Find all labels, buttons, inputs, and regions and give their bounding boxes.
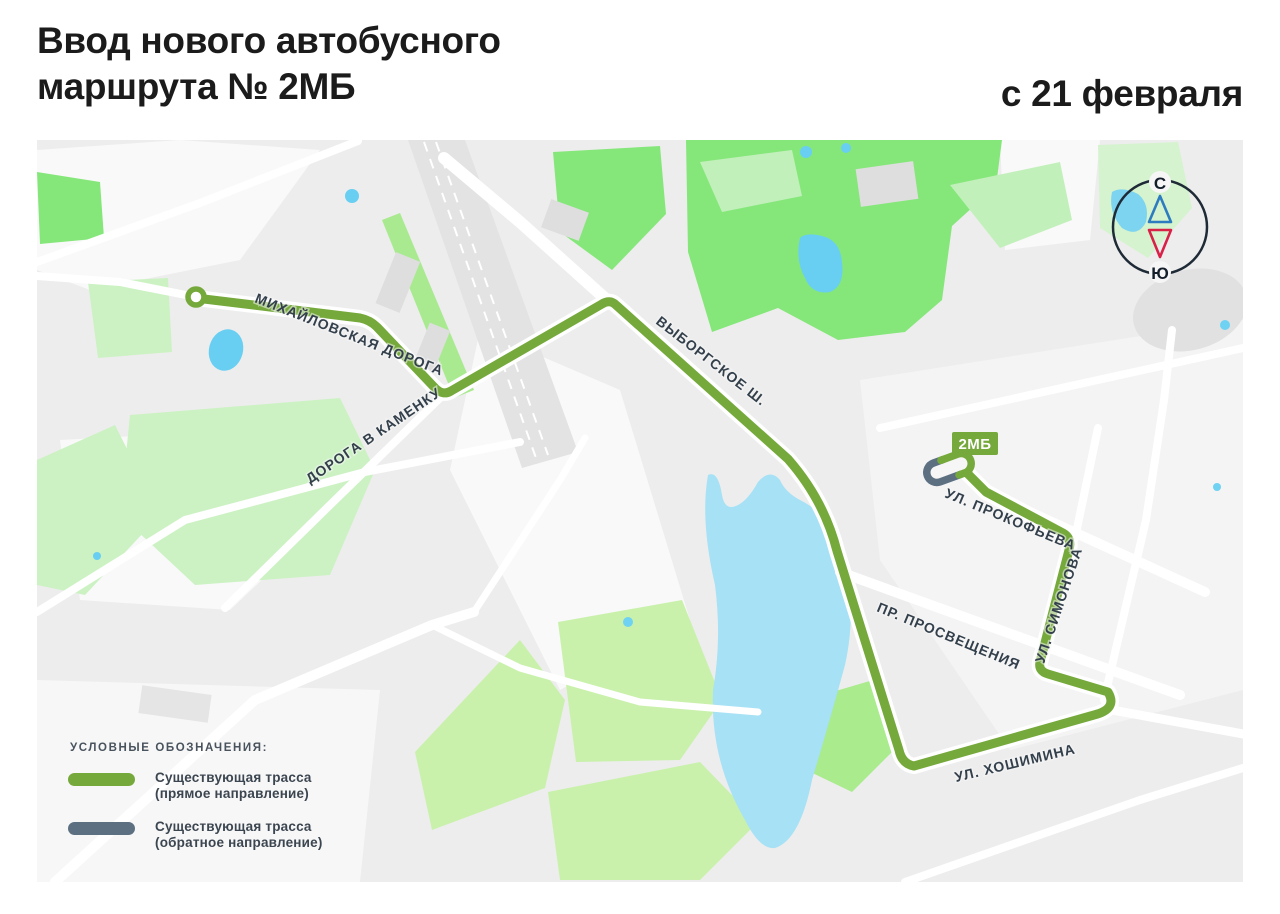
legend-reverse-line1: Существующая трасса [155,819,312,834]
route-badge: 2МБ [952,432,998,455]
legend-label-reverse: Существующая трасса (обратное направлени… [155,819,323,851]
route-terminal-loop-west [188,289,204,305]
legend-label-forward: Существующая трасса (прямое направление) [155,770,312,802]
title-line-1: Ввод нового автобусного [37,20,501,61]
legend-item-reverse: Существующая трасса (обратное направлени… [68,819,368,851]
compass-north-label: С [1154,174,1166,193]
effective-date: с 21 февраля [1001,73,1243,115]
route-badge-label: 2МБ [958,436,991,453]
title-line-2: маршрута № 2МБ [37,66,355,107]
compass-south-label: Ю [1151,264,1169,283]
legend-forward-line1: Существующая трасса [155,770,312,785]
legend-swatch-forward [68,773,135,786]
legend-reverse-line2: (обратное направление) [155,835,323,850]
legend-title: УСЛОВНЫЕ ОБОЗНАЧЕНИЯ: [70,742,368,754]
legend: УСЛОВНЫЕ ОБОЗНАЧЕНИЯ: Существующая трасс… [68,742,368,868]
legend-forward-line2: (прямое направление) [155,786,309,801]
page-title: Ввод нового автобусногомаршрута № 2МБ [37,18,501,110]
legend-item-forward: Существующая трасса (прямое направление) [68,770,368,802]
legend-swatch-reverse [68,822,135,835]
